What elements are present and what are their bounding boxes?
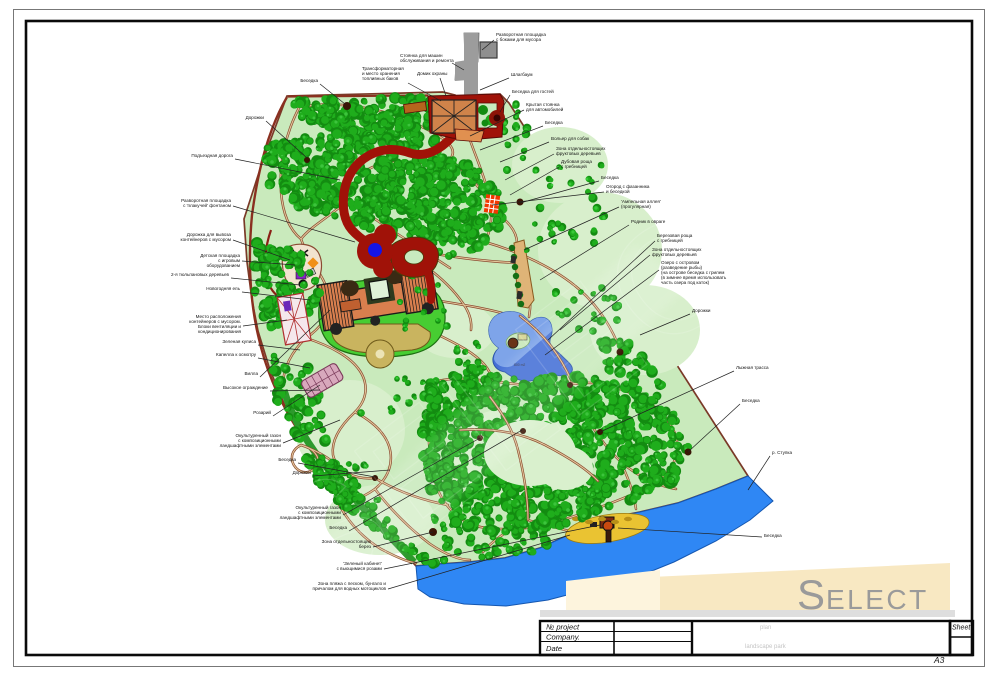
svg-text:Sheet: Sheet bbox=[952, 625, 971, 632]
svg-text:и беседкой: и беседкой bbox=[606, 188, 630, 194]
svg-text:Беседка для гостей: Беседка для гостей bbox=[512, 88, 554, 94]
svg-text:контейнеров с мусором: контейнеров с мусором bbox=[181, 236, 231, 242]
svg-text:Шлагбаум: Шлагбаум bbox=[511, 72, 533, 77]
svg-text:Беседка: Беседка bbox=[601, 175, 619, 180]
svg-text:Домик охраны: Домик охраны bbox=[417, 71, 447, 76]
svg-text:Родник в овраге: Родник в овраге bbox=[631, 219, 666, 224]
svg-text:причалом для водных мотоциклов: причалом для водных мотоциклов bbox=[312, 586, 386, 591]
svg-text:для автомобилей: для автомобилей bbox=[526, 106, 564, 112]
svg-text:берез: берез bbox=[359, 544, 371, 549]
svg-text:Беседка: Беседка bbox=[545, 120, 563, 125]
svg-text:landscape park: landscape park bbox=[745, 644, 787, 650]
svg-text:Company.: Company. bbox=[546, 633, 580, 642]
svg-text:(прогулярная): (прогулярная) bbox=[621, 204, 651, 209]
svg-text:ландшафтными элементами: ландшафтными элементами bbox=[220, 443, 282, 448]
svg-text:с боками для мусора: с боками для мусора bbox=[496, 37, 541, 42]
svg-text:кондиционирования: кондиционирования bbox=[198, 329, 241, 334]
svg-text:ELECT: ELECT bbox=[826, 584, 929, 615]
svg-text:с 'плакучей' фонтаном: с 'плакучей' фонтаном bbox=[183, 202, 231, 208]
svg-text:фруктовых деревьев: фруктовых деревьев bbox=[652, 252, 697, 257]
svg-text:р. Ступка: р. Ступка bbox=[772, 450, 792, 455]
svg-text:S: S bbox=[797, 571, 825, 618]
svg-text:Date: Date bbox=[546, 644, 562, 653]
svg-text:Розарий: Розарий bbox=[253, 409, 271, 415]
svg-text:Беседка: Беседка bbox=[278, 457, 296, 462]
svg-text:Подъездная дорога: Подъездная дорога bbox=[191, 153, 233, 158]
svg-text:ландшафтными элементами: ландшафтными элементами bbox=[280, 515, 342, 520]
svg-text:с гребницей: с гребницей bbox=[561, 163, 587, 169]
svg-text:Лыжная трасса: Лыжная трасса bbox=[736, 365, 769, 370]
svg-text:Зеленая кулиса: Зеленая кулиса bbox=[222, 339, 256, 344]
svg-text:Беседка: Беседка bbox=[764, 533, 782, 538]
svg-text:Дорожки: Дорожки bbox=[293, 470, 312, 475]
svg-text:Высокое ограждение: Высокое ограждение bbox=[223, 385, 268, 390]
svg-text:Вилла: Вилла bbox=[244, 371, 258, 376]
svg-text:фруктовых деревьев: фруктовых деревьев bbox=[556, 151, 601, 156]
svg-text:обслуживания и ремонта: обслуживания и ремонта bbox=[400, 58, 454, 63]
svg-text:оборудованием: оборудованием bbox=[207, 263, 240, 268]
svg-text:2-я тюльпановых деревьев: 2-я тюльпановых деревьев bbox=[171, 272, 230, 277]
svg-text:plan: plan bbox=[760, 625, 771, 631]
svg-text:Беседка: Беседка bbox=[742, 398, 760, 403]
svg-text:с гребницей: с гребницей bbox=[657, 237, 683, 243]
svg-text:Дорожки: Дорожки bbox=[692, 308, 711, 313]
svg-text:с вьющимися розами: с вьющимися розами bbox=[337, 566, 383, 571]
svg-text:Вольер для собак: Вольер для собак bbox=[551, 136, 590, 141]
svg-text:Дорожки: Дорожки bbox=[246, 115, 265, 120]
svg-text:№ project: № project bbox=[546, 623, 580, 632]
svg-text:Капелла к осмотру: Капелла к осмотру bbox=[216, 352, 257, 357]
svg-text:часть озера под каток): часть озера под каток) bbox=[661, 280, 710, 285]
svg-text:Беседка: Беседка bbox=[329, 525, 347, 530]
svg-text:Беседка: Беседка bbox=[300, 78, 318, 83]
svg-text:Новогодняя ель: Новогодняя ель bbox=[206, 286, 240, 291]
svg-text:топливных баков: топливных баков bbox=[362, 76, 399, 81]
svg-text:A3: A3 bbox=[933, 655, 945, 665]
